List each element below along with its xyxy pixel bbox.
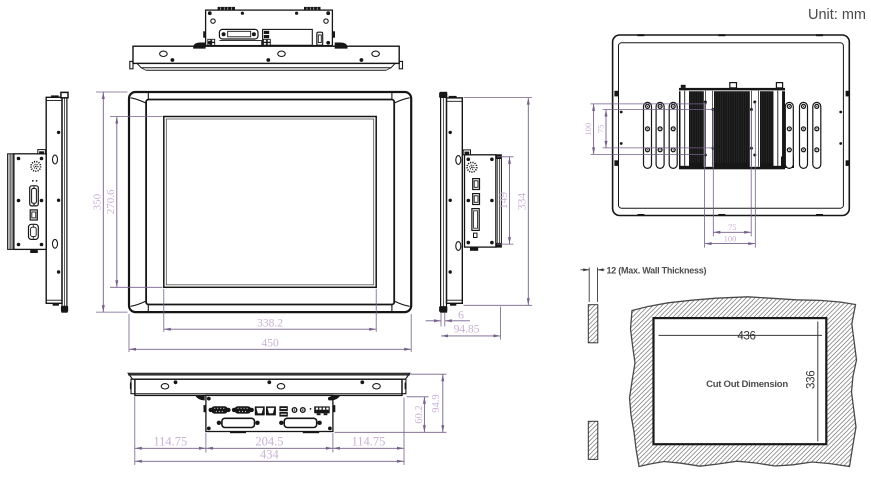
svg-text:336: 336 [806, 371, 818, 389]
svg-text:12 (Max. Wall Thickness): 12 (Max. Wall Thickness) [607, 265, 707, 275]
svg-text:149: 149 [498, 192, 510, 210]
svg-text:Unit: mm: Unit: mm [808, 7, 866, 23]
svg-text:270.6: 270.6 [105, 189, 117, 214]
svg-text:60.2: 60.2 [414, 405, 425, 423]
svg-text:100: 100 [583, 123, 593, 136]
svg-text:436: 436 [737, 330, 755, 342]
svg-text:6: 6 [458, 309, 464, 321]
svg-text:94.9: 94.9 [431, 394, 442, 412]
svg-text:75: 75 [595, 124, 605, 133]
svg-text:334: 334 [517, 193, 529, 211]
svg-text:434: 434 [260, 448, 280, 462]
svg-text:450: 450 [261, 338, 279, 350]
svg-text:338.2: 338.2 [257, 318, 283, 330]
svg-text:114.75: 114.75 [153, 435, 187, 449]
svg-text:Cut Out Dimension: Cut Out Dimension [706, 379, 788, 390]
svg-text:94.85: 94.85 [454, 324, 480, 336]
svg-text:350: 350 [92, 193, 104, 210]
svg-text:204.5: 204.5 [255, 435, 283, 449]
svg-text:75: 75 [728, 222, 737, 232]
svg-text:100: 100 [724, 234, 737, 244]
svg-text:114.75: 114.75 [351, 435, 385, 449]
